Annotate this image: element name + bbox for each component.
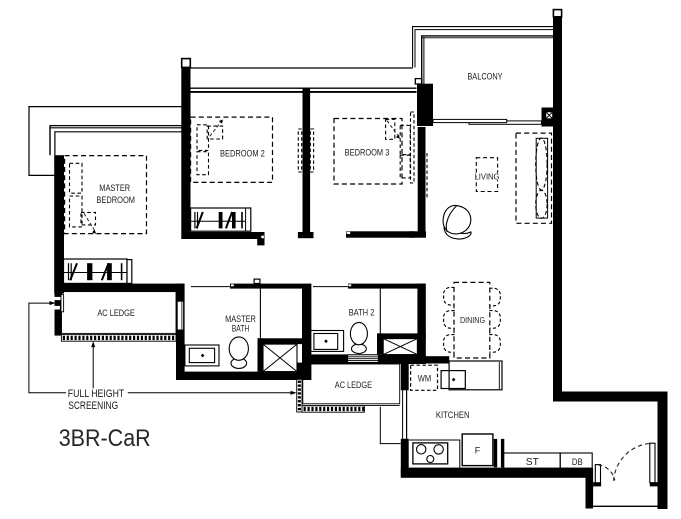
- svg-text:BALCONY: BALCONY: [467, 71, 502, 81]
- svg-text:BATH: BATH: [232, 323, 250, 333]
- svg-text:3BR-CaR: 3BR-CaR: [59, 425, 151, 452]
- svg-text:FULL HEIGHT: FULL HEIGHT: [68, 388, 125, 400]
- svg-text:F: F: [475, 445, 481, 455]
- svg-text:LIVING: LIVING: [475, 172, 500, 182]
- svg-text:BEDROOM 2: BEDROOM 2: [220, 149, 265, 159]
- svg-text:AC LEDGE: AC LEDGE: [97, 308, 135, 318]
- svg-text:BEDROOM: BEDROOM: [96, 195, 135, 205]
- svg-text:ST: ST: [526, 457, 539, 468]
- svg-text:MASTER: MASTER: [99, 183, 130, 193]
- svg-text:KITCHEN: KITCHEN: [436, 410, 470, 420]
- svg-text:AC LEDGE: AC LEDGE: [335, 380, 372, 390]
- svg-text:DB: DB: [572, 457, 583, 467]
- svg-text:DINING: DINING: [460, 315, 485, 325]
- svg-text:BATH 2: BATH 2: [349, 308, 375, 318]
- svg-text:WM: WM: [418, 373, 431, 383]
- svg-text:SCREENING: SCREENING: [68, 400, 118, 412]
- svg-text:BEDROOM 3: BEDROOM 3: [345, 147, 390, 157]
